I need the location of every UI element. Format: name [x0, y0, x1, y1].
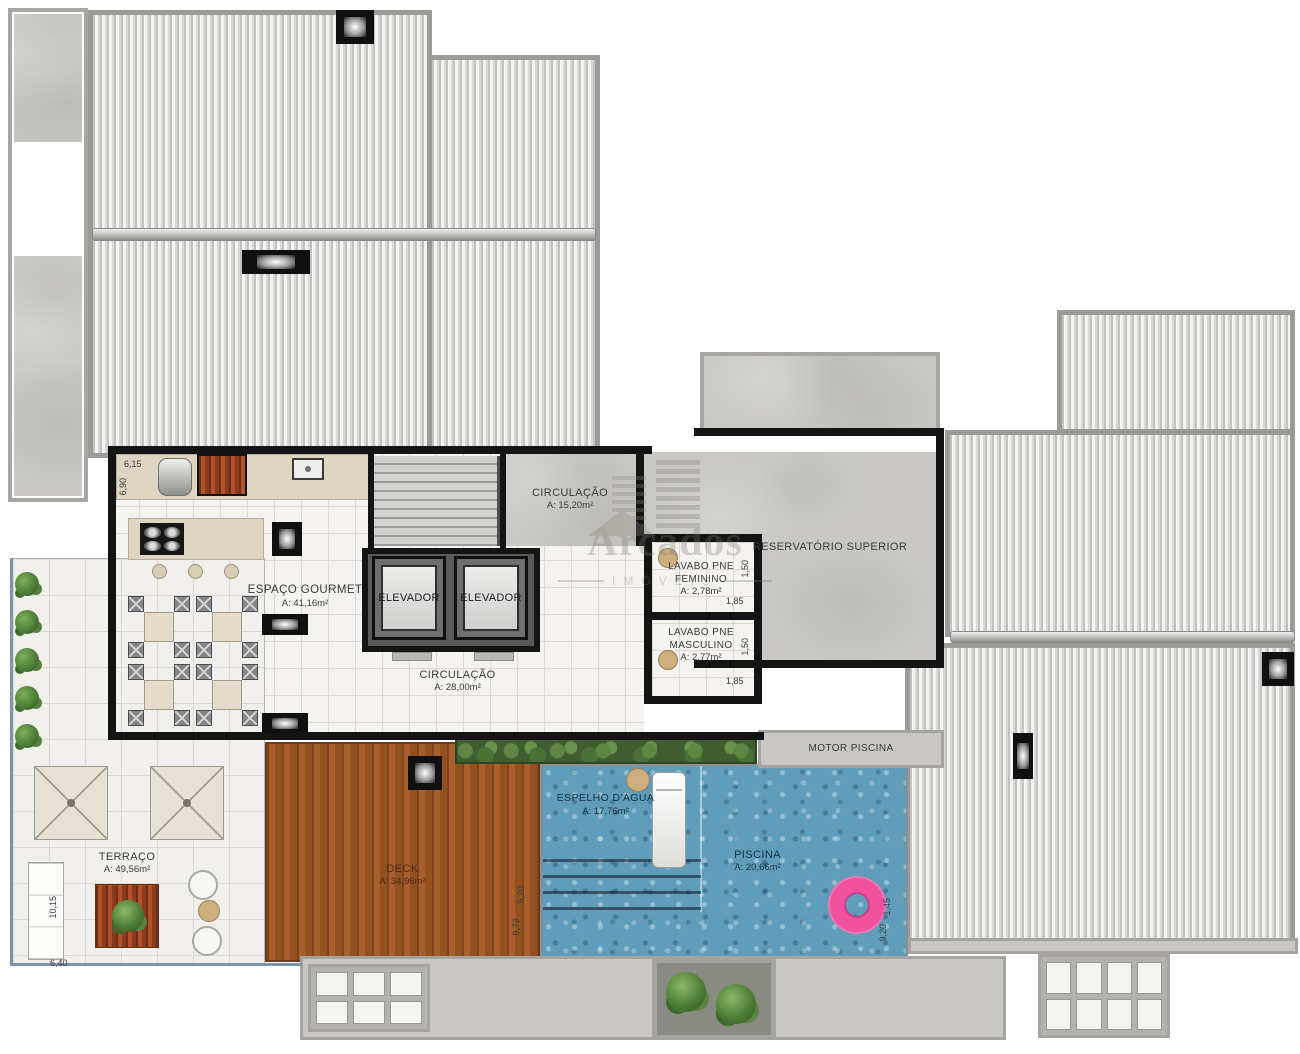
- dim-lavabo-fem-width: 1,85: [726, 596, 744, 606]
- walkway-right-band: [908, 938, 1298, 954]
- concrete-block-top: [14, 14, 82, 142]
- pool-float-ring-icon: [830, 878, 884, 932]
- roof-ridge-top: [92, 228, 596, 241]
- shrub-icon: [15, 572, 39, 596]
- dim-lavabo-masc-depth: 1,50: [740, 638, 750, 656]
- dim-deck-right-lower: 9,73: [511, 918, 521, 936]
- elevator-sill: [392, 652, 432, 661]
- planter-plants-icon: [716, 984, 756, 1024]
- umbrella-icon: [150, 766, 224, 840]
- floor-vent-icon: [262, 713, 308, 734]
- stool-icon: [152, 564, 167, 579]
- round-chair-icon: [188, 870, 218, 900]
- hedge-planter: [455, 738, 757, 764]
- roof-section-right-upper: [1057, 310, 1295, 434]
- roof-pillar-icon: [1013, 733, 1033, 779]
- room-label-reservatorio: RESERVATÓRIO SUPERIOR: [720, 540, 940, 554]
- round-chair-icon: [192, 926, 222, 956]
- table-set: [130, 598, 188, 656]
- room-label-deck: DECK A: 34,96m²: [330, 862, 475, 889]
- shrub-icon: [15, 686, 39, 710]
- shrub-icon: [15, 610, 39, 634]
- dim-lavabo-fem-depth: 1,50: [740, 560, 750, 578]
- staircase: [374, 456, 500, 546]
- shrub-icon: [15, 724, 39, 748]
- room-label-motor-piscina: MOTOR PISCINA: [760, 742, 942, 755]
- wall: [368, 446, 374, 550]
- roof-section-top-right: [427, 55, 600, 458]
- sofa-icon: [28, 862, 64, 960]
- room-label-lavabo-feminino: LAVABO PNE FEMININO A: 2,78m²: [648, 560, 754, 598]
- wall: [108, 732, 764, 740]
- dim-deck-right-upper: 5,20: [516, 886, 526, 904]
- room-label-piscina: PISCINA A: 20,66m²: [700, 848, 815, 875]
- room-label-lavabo-masculino: LAVABO PNE MASCULINO A: 2,77m²: [648, 626, 754, 664]
- plant-pot-icon: [112, 900, 144, 932]
- kitchen-cabinet: [197, 454, 247, 496]
- elevator-1-label: ELEVADOR: [381, 565, 437, 631]
- wall: [108, 446, 116, 740]
- pool-side-table-icon: [626, 768, 650, 792]
- reservatorio-upper-block: [700, 352, 940, 436]
- dim-gourmet-height: 6,90: [118, 478, 128, 496]
- floor-vent-icon: [262, 614, 308, 635]
- dim-pool-right-lower: 9,20: [878, 924, 888, 942]
- concrete-block-bottom: [14, 256, 82, 496]
- dim-terraco-height: 10,15: [48, 896, 58, 919]
- fridge-icon: [158, 458, 192, 496]
- roof-vent-icon: [336, 10, 374, 44]
- roof-vent-icon: [1262, 652, 1294, 686]
- column-icon: [272, 522, 302, 556]
- roof-vent-icon: [242, 250, 310, 274]
- elevator-2: ELEVADOR: [454, 556, 528, 640]
- dim-lavabo-masc-width: 1,85: [726, 676, 744, 686]
- dim-pool-right-upper: 1,45: [882, 898, 892, 916]
- walkway-grid-right: [1038, 954, 1170, 1038]
- dim-gourmet-width: 6,15: [124, 459, 142, 469]
- roof-section-right-lower: [905, 643, 1295, 943]
- deck-vent-icon: [408, 756, 442, 790]
- wall: [108, 446, 652, 454]
- roof-ridge-right: [950, 631, 1295, 643]
- dim-terraco-width: 6,40: [50, 958, 68, 968]
- elevator-2-label: ELEVADOR: [463, 565, 519, 631]
- umbrella-icon: [34, 766, 108, 840]
- room-label-circulacao-top: CIRCULAÇÃO A: 15,20m²: [500, 486, 640, 513]
- wall: [694, 428, 944, 436]
- stool-icon: [224, 564, 239, 579]
- stove-icon: [140, 523, 184, 555]
- side-table-icon: [198, 900, 220, 922]
- stool-icon: [188, 564, 203, 579]
- rooftop-floor-plan: RESERVATÓRIO SUPERIOR MOTOR PISCINA ELEV…: [0, 0, 1300, 1054]
- table-set: [198, 666, 256, 724]
- wall: [644, 612, 762, 620]
- shrub-icon: [15, 648, 39, 672]
- planter-plants-icon: [666, 972, 706, 1012]
- table-set: [130, 666, 188, 724]
- walkway-grid-left: [308, 964, 430, 1032]
- elevator-1: ELEVADOR: [372, 556, 446, 640]
- deck-area: [265, 742, 540, 962]
- room-label-espelho-dagua: ESPELHO D'ÁGUA A: 17,76m²: [543, 792, 668, 818]
- kitchen-sink-icon: [292, 458, 324, 480]
- roof-section-right-mid: [945, 430, 1295, 637]
- room-label-espaco-gourmet: ESPAÇO GOURMET A: 41,16m²: [240, 583, 370, 610]
- elevator-sill: [474, 652, 514, 661]
- room-label-circulacao-main: CIRCULAÇÃO A: 28,00m²: [395, 668, 520, 695]
- room-label-terraco: TERRAÇO A: 49,56m²: [72, 850, 182, 877]
- pool-lounger-icon: [652, 772, 686, 868]
